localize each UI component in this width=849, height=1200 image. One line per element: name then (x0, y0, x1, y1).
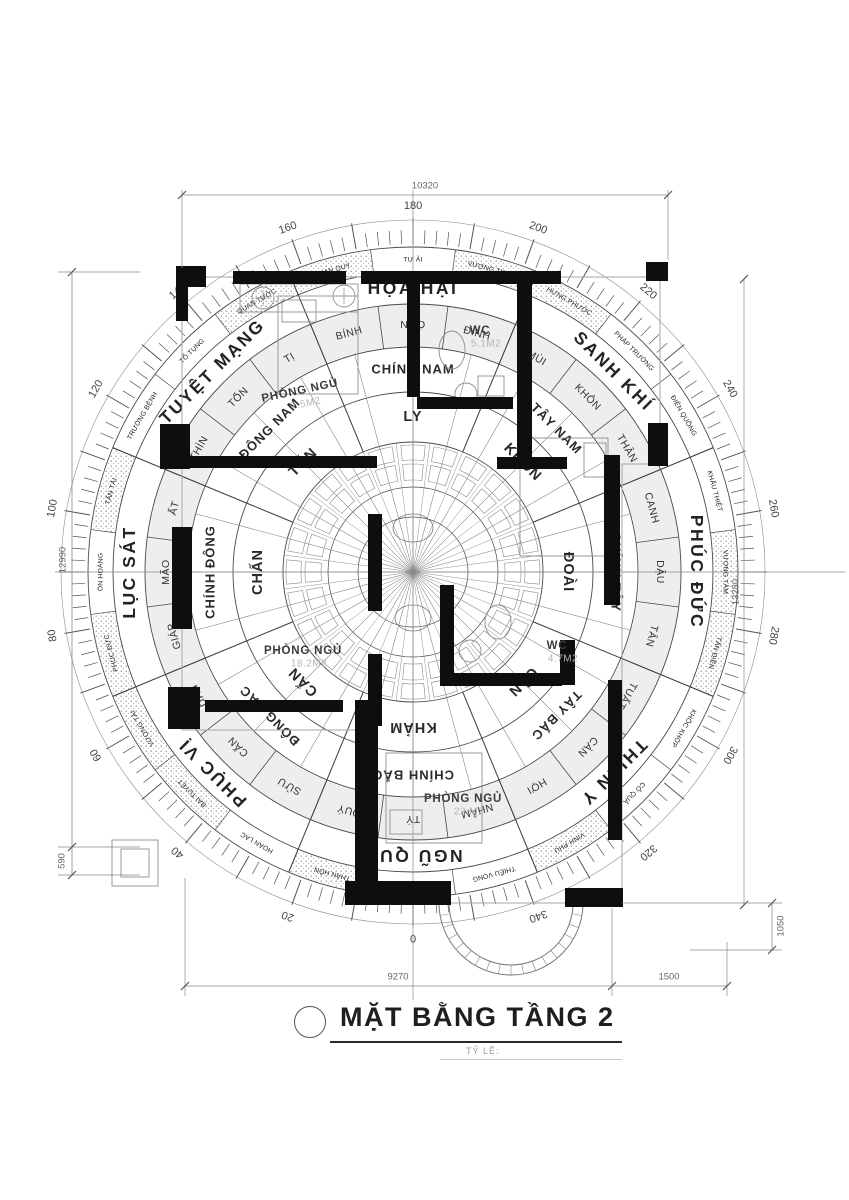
degree-tick (546, 872, 552, 885)
degree-tick (728, 478, 741, 482)
arc-box (499, 534, 519, 557)
degree-tick (64, 629, 90, 634)
degree-tick (252, 862, 259, 874)
arc-box (488, 610, 511, 635)
degree-tick (389, 231, 390, 245)
wall (497, 457, 567, 469)
star-label: KHẨU THIỆT (706, 469, 726, 512)
room-label: PHÒNG NGỦ (424, 792, 502, 805)
bow-window-tick (558, 943, 566, 949)
scale-underline (440, 1059, 622, 1060)
sink-icon (459, 640, 481, 662)
degree-tick (202, 830, 211, 841)
degree-tick (159, 343, 169, 352)
room-label: WC (547, 640, 568, 652)
arc-box (297, 498, 321, 525)
furniture-outline (282, 300, 316, 322)
degree-tick (319, 243, 323, 256)
compass-degree-label: 40 (169, 844, 186, 861)
degree-tick (123, 746, 135, 753)
degree-tick (184, 816, 193, 826)
degree-tick (96, 695, 109, 700)
title-underline (330, 1041, 622, 1043)
degree-tick (73, 536, 87, 537)
degree-tick (101, 705, 114, 711)
star-label: VƯỢNG TÂM (722, 550, 731, 594)
arc-box (428, 465, 451, 485)
degree-tick (734, 640, 748, 643)
degree-tick (136, 765, 147, 773)
degree-tick (84, 478, 97, 482)
sector-label: PHÚC ĐỨC (687, 515, 708, 629)
compass-degree-label: 20 (280, 908, 296, 923)
arc-box (431, 447, 457, 467)
bow-window-tick (542, 957, 547, 966)
wall (176, 287, 188, 321)
direction-label: CHÍNH ĐÔNG (203, 525, 218, 619)
degree-tick (307, 247, 311, 260)
bow-window-tick (532, 961, 535, 970)
degree-tick (587, 282, 594, 294)
degree-tick (708, 716, 721, 722)
degree-tick (447, 232, 448, 246)
star-label: TỐ TỤNG (177, 336, 207, 366)
degree-tick (671, 361, 682, 370)
degree-tick (713, 433, 726, 439)
arc-box (306, 587, 326, 610)
arc-box (315, 509, 338, 534)
degree-tick (587, 850, 594, 862)
degree-tick (88, 466, 101, 470)
bow-window-tick (475, 957, 480, 966)
degree-tick (292, 239, 301, 263)
room-area-label: 4.7M2 (548, 654, 578, 665)
degree-tick (292, 880, 301, 904)
dimension-label: 13280 (731, 579, 742, 605)
wall (233, 271, 346, 284)
degree-tick (514, 884, 518, 897)
dimension-label: 1500 (658, 972, 679, 983)
toilet-icon (485, 605, 511, 639)
bow-window-tick (456, 943, 464, 949)
degree-tick (72, 548, 86, 549)
degree-tick (606, 295, 614, 306)
star-label: KHỐC KHỚP (669, 708, 699, 751)
wall (185, 456, 377, 468)
degree-tick (129, 381, 141, 389)
degree-tick (263, 867, 269, 880)
arc-box (297, 618, 321, 645)
mountain-label: MÃO (159, 559, 172, 584)
degree-tick (84, 662, 97, 666)
arc-box (288, 590, 308, 616)
degree-tick (342, 237, 345, 251)
bow-window-tick (565, 934, 574, 939)
compass-degree-label: 280 (766, 625, 781, 645)
dimension-label: 12990 (58, 547, 69, 573)
arc-box (451, 474, 476, 497)
degree-tick (641, 808, 651, 818)
wall (417, 397, 513, 409)
star-divider (452, 869, 455, 894)
degree-tick (481, 237, 484, 251)
degree-tick (725, 466, 738, 470)
wall (172, 527, 192, 629)
arc-box (518, 528, 538, 554)
degree-tick (222, 288, 230, 300)
degree-tick (596, 288, 604, 300)
arc-box (375, 465, 398, 485)
degree-tick (175, 808, 185, 818)
degree-tick (703, 411, 715, 418)
room-area-label: 22.M2 (454, 807, 484, 818)
degree-tick (81, 489, 95, 492)
degree-tick (713, 705, 726, 711)
degree-tick (96, 444, 109, 449)
compass-degree-label: 240 (720, 378, 740, 400)
bow-window-tick (465, 950, 471, 958)
degree-tick (740, 548, 754, 549)
degree-tick (492, 890, 495, 904)
degree-tick (352, 223, 357, 249)
degree-tick (202, 303, 211, 314)
degree-tick (212, 295, 220, 306)
wall (517, 277, 532, 464)
wall (604, 455, 620, 605)
degree-tick (557, 867, 563, 880)
bow-window-tick (486, 961, 489, 970)
degree-tick (525, 880, 534, 904)
degree-tick (64, 511, 90, 516)
page-title: MẶT BẰNG TẦNG 2 (340, 1002, 615, 1033)
direction-label: CHÍNH BẮC (372, 768, 454, 783)
dimension-label: 590 (57, 853, 68, 869)
degree-tick (649, 800, 659, 810)
star-label: TỰ ẢI (403, 255, 422, 264)
degree-tick (74, 524, 88, 526)
degree-tick (731, 651, 745, 654)
compass-degree-label: 220 (637, 281, 659, 302)
degree-tick (546, 260, 552, 273)
compass-degree-label: 120 (86, 378, 106, 400)
degree-tick (624, 301, 641, 321)
degree-tick (738, 524, 752, 526)
star-label: HOAN LẠC (240, 830, 275, 854)
degree-tick (232, 850, 239, 862)
degree-tick (685, 755, 697, 763)
degree-tick (80, 684, 104, 693)
wall (345, 881, 451, 905)
degree-tick (73, 606, 87, 607)
degree-tick (330, 240, 333, 254)
degree-tick (739, 536, 753, 537)
degree-tick (78, 640, 92, 643)
degree-tick (167, 334, 177, 344)
degree-tick (72, 595, 86, 596)
bow-window-tick (522, 964, 524, 974)
wall (440, 673, 562, 686)
bow-window-tick (498, 964, 500, 974)
wall (368, 514, 382, 611)
degree-tick (721, 451, 745, 460)
degree-tick (492, 240, 495, 254)
bow-window-tick (572, 914, 582, 916)
degree-tick (459, 233, 461, 247)
scale-label: TỶ LỆ: (466, 1046, 500, 1056)
arc-box (315, 610, 338, 635)
degree-tick (377, 232, 378, 246)
dimension-label: 1050 (776, 915, 787, 936)
room-area-label: 18.2M2 (291, 659, 327, 670)
furniture-outline (478, 376, 504, 396)
arc-box (459, 456, 486, 480)
sector-label: LỤC SÁT (118, 525, 139, 618)
degree-tick (657, 791, 667, 800)
section-marker-circle (294, 1006, 326, 1038)
degree-tick (236, 856, 249, 879)
degree-tick (342, 893, 345, 907)
degree-tick (74, 618, 88, 620)
degree-tick (703, 726, 715, 733)
degree-tick (144, 774, 155, 783)
degree-tick (691, 746, 703, 753)
arc-box (499, 587, 519, 610)
wall (565, 888, 623, 907)
compass-degree-label: 260 (766, 498, 781, 518)
compass-degree-label: 0 (410, 932, 416, 944)
degree-tick (678, 371, 689, 379)
compass-degree-label: 60 (88, 747, 105, 764)
wall (168, 687, 200, 729)
arc-box (518, 590, 538, 616)
room-label: WC (470, 325, 491, 337)
degree-tick (212, 837, 220, 848)
wall (440, 585, 454, 685)
degree-tick (734, 501, 748, 504)
mountain-label: TÝ (406, 813, 420, 826)
star-divider (651, 374, 671, 389)
degree-tick (632, 318, 641, 328)
arc-box (339, 663, 366, 687)
degree-tick (736, 511, 762, 516)
degree-tick (111, 411, 123, 418)
degree-tick (274, 260, 280, 273)
degree-tick (436, 231, 437, 245)
degree-tick (185, 823, 202, 843)
degree-tick (697, 395, 720, 408)
star-label: TRƯỜNG BỆNH (125, 390, 160, 441)
degree-tick (731, 489, 745, 492)
degree-tick (624, 823, 641, 843)
degree-tick (136, 371, 147, 379)
degree-tick (641, 326, 651, 336)
degree-tick (285, 876, 290, 889)
arc-box (306, 534, 326, 557)
degree-tick (649, 334, 659, 344)
degree-tick (88, 673, 101, 677)
degree-tick (525, 239, 534, 263)
dimension-label: 9270 (387, 972, 408, 983)
star-label: ĐIÊN QUỒNG (669, 393, 701, 438)
compass-degree-label: 320 (637, 842, 659, 863)
degree-tick (365, 233, 367, 247)
degree-tick (106, 716, 119, 722)
degree-tick (129, 755, 141, 763)
degree-tick (725, 673, 738, 677)
star-divider (155, 374, 175, 389)
degree-tick (470, 895, 475, 921)
arc-box (288, 528, 308, 554)
degree-tick (678, 765, 689, 773)
degree-tick (685, 381, 697, 389)
degree-tick (632, 816, 641, 826)
degree-tick (738, 618, 752, 620)
arc-box (504, 498, 528, 525)
degree-tick (567, 270, 574, 282)
degree-tick (721, 684, 745, 693)
degree-tick (708, 422, 721, 428)
compass-degree-label: 80 (46, 628, 60, 642)
degree-tick (142, 783, 162, 800)
wall (407, 280, 420, 397)
degree-tick (106, 736, 129, 749)
degree-tick (671, 774, 682, 783)
bow-window-tick (551, 950, 557, 958)
bow-window-arc (449, 903, 573, 965)
degree-tick (470, 223, 475, 249)
wall (205, 700, 343, 712)
degree-tick (106, 395, 129, 408)
degree-tick (159, 791, 169, 800)
arc-box (451, 647, 476, 670)
degree-tick (514, 247, 518, 260)
compass-degree-label: 100 (45, 498, 60, 518)
compass-degree-label: 340 (528, 907, 549, 925)
page: { "title": { "text": "MẶT BẰNG TẦNG 2", … (0, 0, 849, 1200)
room-label: PHÒNG NGỦ (264, 644, 342, 657)
star-label: ÔN HOÀNG (96, 553, 105, 592)
degree-tick (536, 876, 541, 889)
arc-box (350, 474, 375, 497)
compass-degree-label: 160 (277, 219, 298, 237)
degree-tick (481, 893, 484, 907)
room-area-label: 5.1M2 (471, 339, 501, 350)
degree-tick (717, 444, 730, 449)
bow-window-tick (443, 924, 452, 927)
degree-tick (330, 890, 333, 904)
degree-tick (657, 343, 667, 352)
degree-tick (739, 606, 753, 607)
degree-tick (459, 897, 461, 911)
degree-tick (664, 783, 684, 800)
compass-degree-label: 200 (528, 219, 549, 237)
degree-tick (106, 422, 119, 428)
degree-tick (111, 726, 123, 733)
degree-tick (717, 695, 730, 700)
trigram-label: CHẤN (249, 549, 266, 595)
wall (176, 266, 206, 287)
degree-tick (596, 844, 604, 856)
mountain-label: DẬU (654, 560, 667, 584)
furniture-outline (121, 849, 149, 877)
degree-tick (307, 884, 311, 897)
degree-tick (101, 433, 114, 439)
degree-tick (567, 862, 574, 874)
compass-degree-label: 300 (720, 744, 740, 766)
degree-tick (175, 326, 185, 336)
sector-label: NGŨ QUỶ (363, 846, 462, 867)
degree-tick (80, 451, 104, 460)
compass-degree-label: 180 (404, 200, 422, 212)
trigram-label: ĐOÀI (560, 552, 577, 592)
bow-window-tick (449, 934, 458, 939)
wall (608, 680, 622, 840)
degree-tick (123, 391, 135, 398)
degree-tick (664, 344, 684, 361)
star-divider (651, 755, 671, 770)
wall (648, 423, 668, 466)
degree-tick (142, 344, 162, 361)
degree-tick (285, 255, 290, 268)
degree-tick (536, 255, 541, 268)
degree-tick (740, 595, 754, 596)
arc-box (504, 618, 528, 645)
degree-tick (319, 887, 323, 900)
degree-tick (503, 243, 507, 256)
degree-tick (81, 651, 95, 654)
dimension-label: 10320 (412, 181, 438, 192)
degree-tick (274, 872, 280, 885)
bow-window-tick (440, 914, 450, 916)
trigram-label: LY (403, 409, 422, 425)
degree-tick (78, 501, 92, 504)
degree-tick (615, 303, 624, 314)
degree-tick (728, 662, 741, 666)
degree-tick (736, 629, 762, 634)
degree-tick (697, 736, 720, 749)
wall (355, 700, 378, 887)
arc-box (488, 509, 511, 534)
degree-tick (167, 800, 177, 810)
degree-tick (577, 856, 590, 879)
degree-tick (691, 391, 703, 398)
wall (646, 262, 668, 281)
degree-tick (144, 361, 155, 370)
trigram-label: KHẢM (389, 719, 437, 736)
degree-tick (222, 844, 230, 856)
degree-tick (503, 887, 507, 900)
bow-window-tick (569, 924, 578, 927)
